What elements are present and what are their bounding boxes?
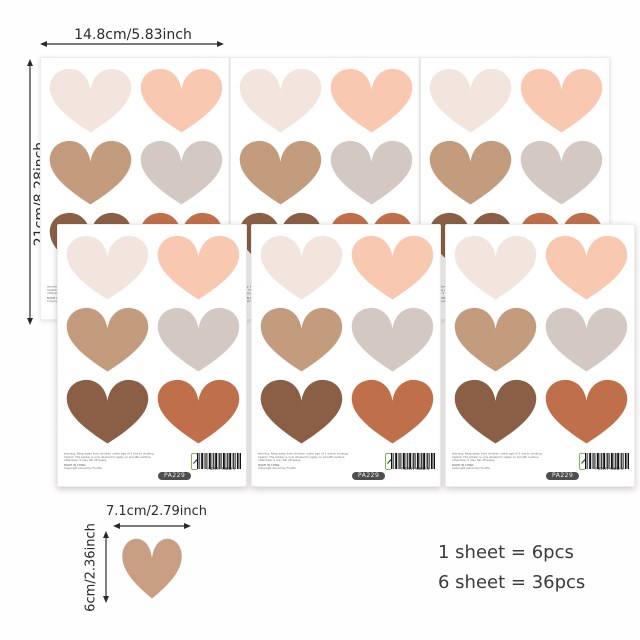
heart-height-label: 6cm/2.36inch [84,498,99,638]
sku-badge: PA229 [546,472,579,480]
warning-line: otherwise, it may fall off easily. [452,459,544,462]
heart-sticker-peach [350,233,435,301]
heart-sticker-dark-brown [259,377,344,445]
heart-sticker-camel [453,305,538,373]
heart-sticker-peach [329,66,414,134]
heart-sticker-dark-brown [65,377,150,445]
heart-sticker-greige [519,138,604,206]
heart-sticker-terracotta [544,377,629,445]
copyright-text: Copyright owned by Funlife [452,467,544,470]
pcs-line-1: 1 sheet = 6pcs [438,538,585,568]
heart-sticker-cream [48,66,133,134]
copyright-text: Copyright owned by Funlife [258,467,350,470]
heart-width-arrow [113,522,191,530]
sku-badge: PA229 [158,472,191,480]
heart-sticker-dark-brown [453,377,538,445]
pcs-line-2: 6 sheet = 36pcs [438,568,585,598]
warning-line: otherwise, it may fall off easily. [258,459,350,462]
heart-sticker-greige [350,305,435,373]
heart-sticker-grid [58,225,246,449]
heart-sticker-terracotta [156,377,241,445]
barcode: 7 62917 94642 4 [585,453,629,475]
heart-sticker-cream [428,66,513,134]
warning-text: warning: Keep away from children under a… [452,452,544,470]
heart-sticker-greige [544,305,629,373]
sku-badge: PA229 [352,472,385,480]
heart-sticker-camel [259,305,344,373]
heart-sticker-peach [519,66,604,134]
warning-text: warning: Keep away from children under a… [258,452,350,470]
heart-sticker-cream [238,66,323,134]
sheet-footer: warning: Keep away from children under a… [64,451,241,481]
heart-sticker-camel [428,138,513,206]
heart-sticker-camel [65,305,150,373]
warning-line: otherwise, it may fall off easily. [64,459,156,462]
sticker-sheet-5: warning: Keep away from children under a… [251,224,441,487]
heart-sticker-cream [453,233,538,301]
heart-width-label: 7.1cm/2.79inch [106,504,198,519]
heart-sticker-cream [259,233,344,301]
copyright-text: Copyright owned by Funlife [64,467,156,470]
barcode-digits: 7 62917 94642 4 [401,468,425,471]
heart-sticker-peach [156,233,241,301]
heart-sticker-camel [238,138,323,206]
heart-sticker-grid [446,225,634,449]
barcode-digits: 7 62917 94642 4 [207,468,231,471]
barcode-digits: 7 62917 94642 4 [595,468,619,471]
heart-sticker-camel [48,138,133,206]
heart-sticker-grid [252,225,440,449]
sheet-footer: warning: Keep away from children under a… [258,451,435,481]
heart-height-arrow [102,531,110,603]
product-image: 14.8cm/5.83inch 21cm/8.28inch warning: K… [0,0,640,640]
heart-sticker-cream [65,233,150,301]
single-heart-sticker [121,536,183,600]
sheet-height-arrow [26,59,34,325]
heart-sticker-terracotta [350,377,435,445]
barcode: 7 62917 94642 4 [391,453,435,475]
sticker-sheet-6: warning: Keep away from children under a… [445,224,635,487]
sheet-footer: warning: Keep away from children under a… [452,451,629,481]
sticker-sheet-4: warning: Keep away from children under a… [57,224,247,487]
heart-sticker-greige [156,305,241,373]
heart-sticker-peach [139,66,224,134]
warning-text: warning: Keep away from children under a… [64,452,156,470]
barcode: 7 62917 94642 4 [197,453,241,475]
heart-sticker-greige [329,138,414,206]
pcs-info: 1 sheet = 6pcs 6 sheet = 36pcs [438,538,585,598]
heart-sticker-greige [139,138,224,206]
sheet-width-arrow [40,40,224,48]
heart-sticker-peach [544,233,629,301]
